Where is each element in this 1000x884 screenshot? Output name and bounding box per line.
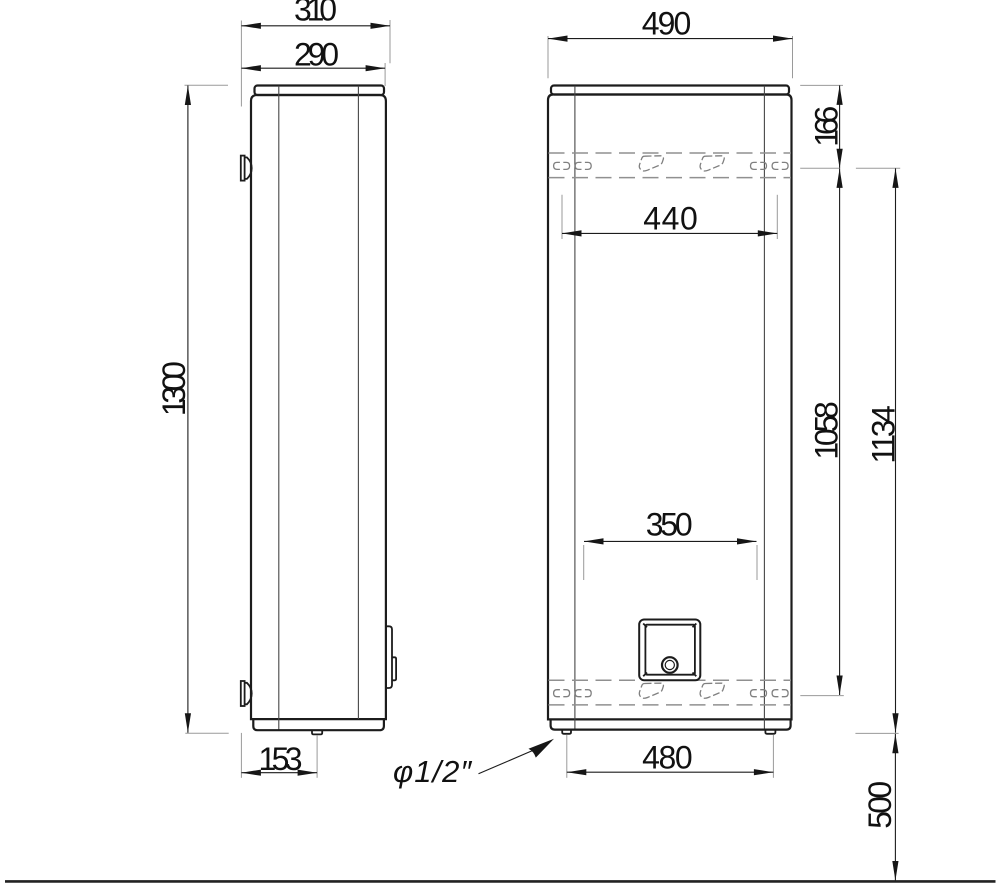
- svg-text:480: 480: [642, 740, 693, 776]
- svg-text:500: 500: [862, 781, 898, 829]
- svg-text:φ1/2″: φ1/2″: [393, 754, 472, 789]
- svg-text:1134: 1134: [865, 405, 901, 464]
- svg-text:310: 310: [294, 0, 337, 28]
- svg-text:166: 166: [809, 106, 845, 147]
- svg-text:440: 440: [643, 200, 698, 236]
- svg-text:290: 290: [294, 36, 339, 72]
- svg-text:1300: 1300: [156, 361, 192, 416]
- svg-text:1058: 1058: [809, 401, 845, 460]
- svg-text:153: 153: [259, 741, 303, 777]
- svg-text:490: 490: [642, 6, 692, 42]
- svg-text:350: 350: [646, 507, 693, 543]
